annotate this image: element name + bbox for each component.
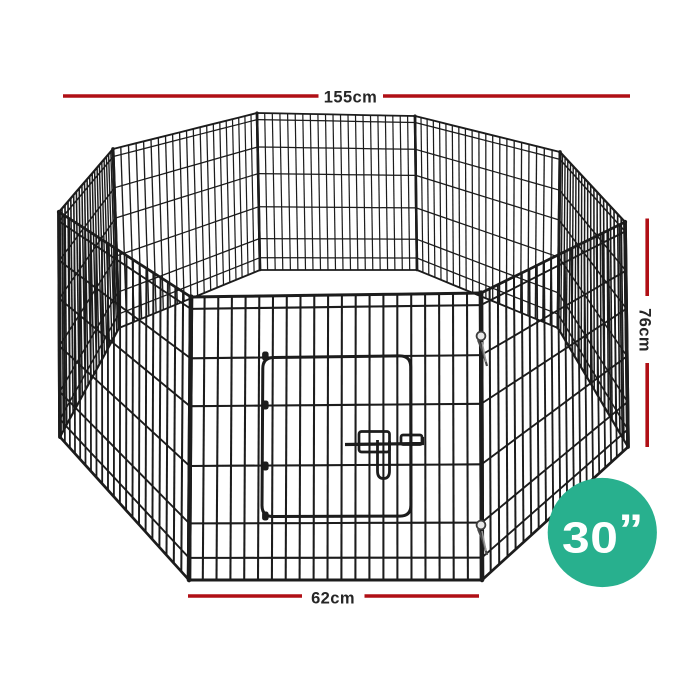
svg-text:76cm: 76cm: [636, 308, 654, 352]
svg-text:155cm: 155cm: [324, 88, 377, 106]
svg-text:62cm: 62cm: [311, 590, 355, 608]
svg-text:30”: 30”: [562, 505, 644, 562]
